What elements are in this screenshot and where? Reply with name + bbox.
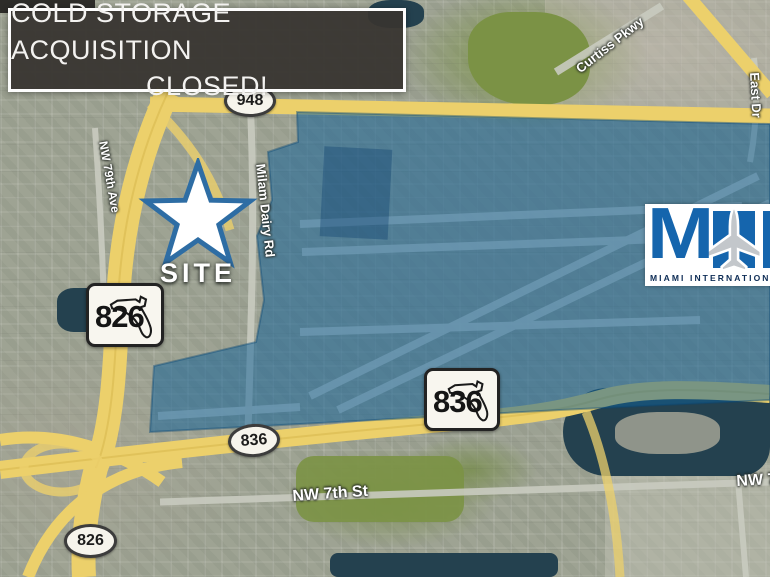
airport-logo: M MIAMI INTERNATIONAL <box>645 204 770 286</box>
route-shield-826-oval: 826 <box>64 524 117 558</box>
logo-monogram: M <box>647 193 714 275</box>
street-label-nw-7th-st-right: NW 7 <box>736 471 770 491</box>
headline-banner: COLD STORAGE ACQUISITION CLOSED! <box>8 8 406 92</box>
route-shield-836-florida: 836 <box>424 368 500 431</box>
route-shield-836-number: 836 <box>433 384 482 420</box>
logo-caption: MIAMI INTERNATIONAL <box>650 273 770 283</box>
aerial-map-graphic: Milam Dairy Rd NW 79th Ave Curtiss Pkwy … <box>0 0 770 577</box>
site-marker: SITE <box>136 158 260 308</box>
route-shield-836-number: 836 <box>240 431 268 451</box>
logo-letter-block-partial <box>763 211 770 268</box>
route-shield-826-number: 826 <box>77 532 104 550</box>
site-label: SITE <box>136 258 260 289</box>
banner-line2: CLOSED! <box>146 68 268 104</box>
banner-line1: COLD STORAGE ACQUISITION <box>11 0 403 68</box>
street-label-east-dr: East Dr <box>747 72 764 118</box>
